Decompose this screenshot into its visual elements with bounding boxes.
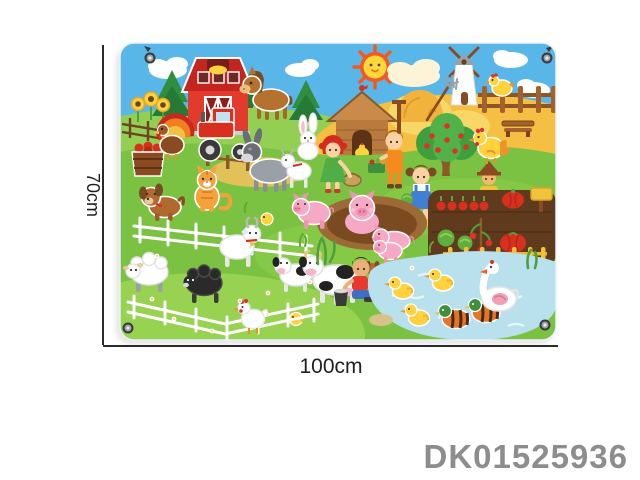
grommet-icon — [541, 321, 550, 330]
height-dimension-label: 70cm — [83, 173, 103, 217]
product-code: DK01525936 — [424, 438, 629, 475]
width-dimension-label: 100cm — [299, 355, 362, 378]
grommet-icon — [124, 324, 133, 333]
milk-bucket-icon — [334, 291, 348, 306]
apple-barrel-icon — [132, 142, 164, 177]
product-photo: 70cm 100cm DK01525936 — [0, 0, 640, 480]
product-image-svg: 70cm 100cm DK01525936 — [0, 0, 640, 480]
post-icon — [397, 100, 401, 134]
vegetable-basket-icon — [368, 163, 385, 173]
rock-icon — [369, 314, 393, 326]
